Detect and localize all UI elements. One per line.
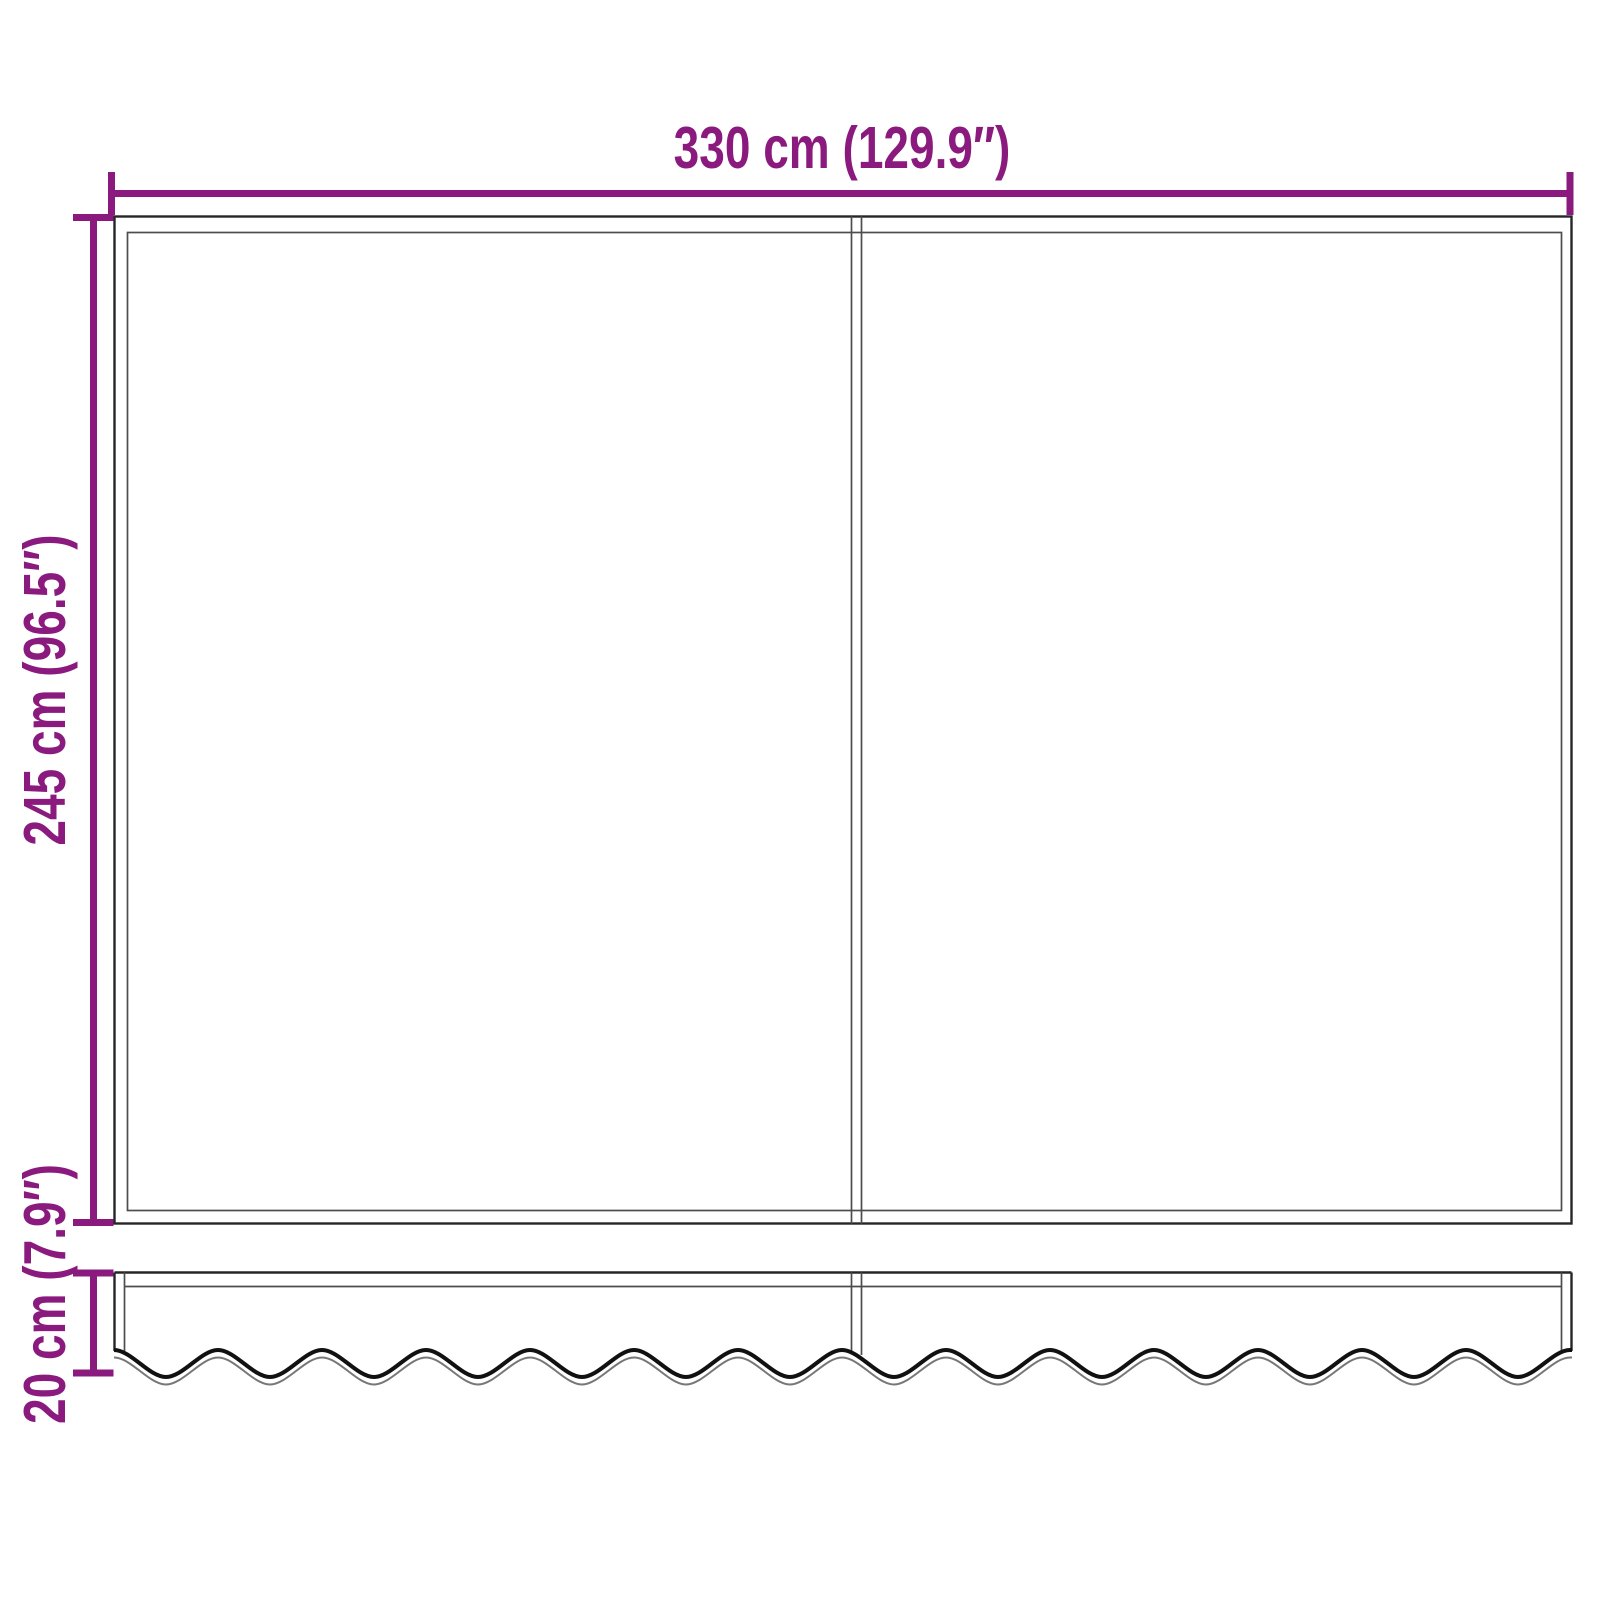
awning-fabric-outline (115, 217, 1572, 1224)
height-dimension (73, 214, 114, 1226)
valance-height-dimension (73, 1270, 114, 1376)
valance-outline (114, 1273, 1572, 1385)
awning-diagram-drawing (0, 0, 1600, 1600)
valance-scalloped-edge (114, 1350, 1572, 1377)
fabric-inner-frame (128, 233, 1562, 1211)
fabric-outer-frame (115, 217, 1572, 1224)
width-dimension (110, 172, 1573, 215)
product-diagram: 330 cm (129.9″) 245 cm (96.5″) 20 cm (7.… (0, 0, 1600, 1600)
valance-scallop-shadow-line (114, 1358, 1572, 1385)
